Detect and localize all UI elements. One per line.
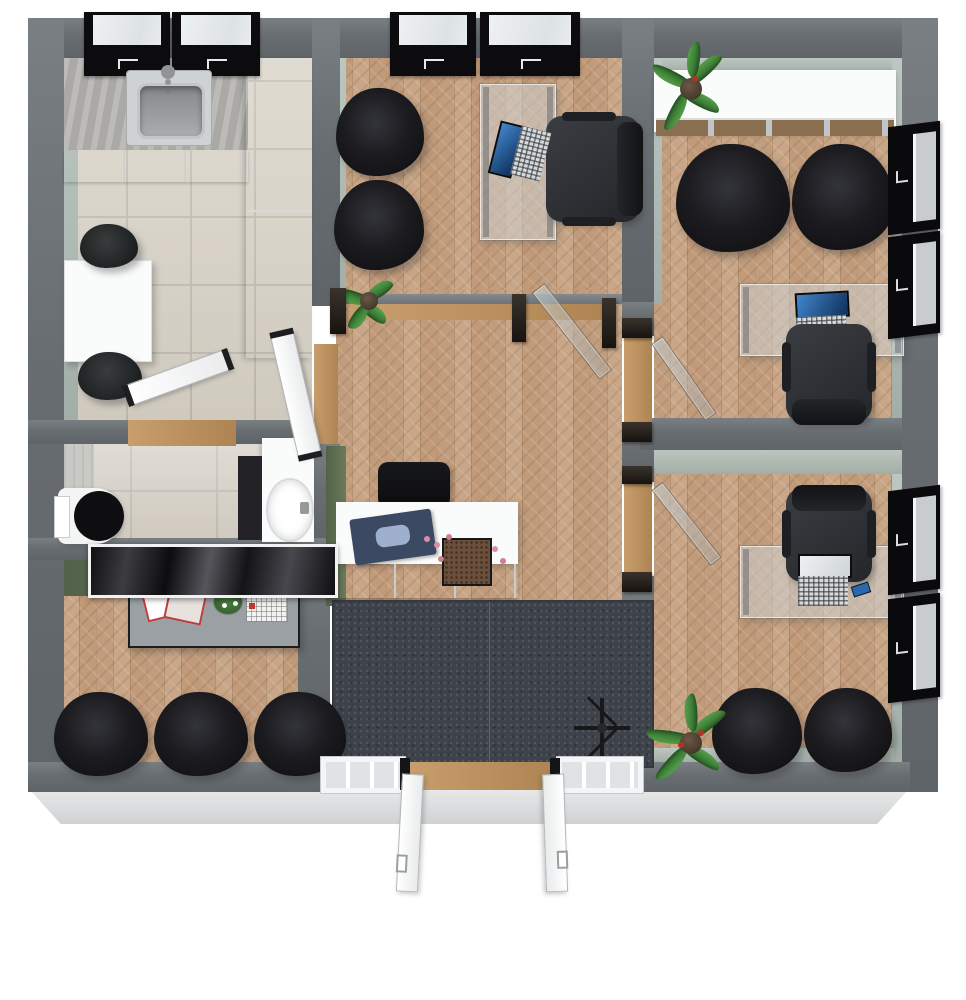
kitchen-door-threshold <box>314 344 338 444</box>
window-handle-icon <box>118 59 138 69</box>
corridor-post-2 <box>622 422 652 442</box>
office-mid-guest-chair-1 <box>336 88 424 176</box>
window-glass <box>913 241 936 326</box>
flower-petals <box>424 536 430 542</box>
wall-art <box>88 544 338 598</box>
window-glass <box>913 603 936 690</box>
bathroom-door-threshold <box>128 420 236 446</box>
office-bottomright-lounge-chair-2 <box>804 688 892 772</box>
sink-basin <box>137 83 205 139</box>
office-bottomright-plant <box>642 694 742 778</box>
entry-threshold <box>408 762 552 790</box>
window-handle-icon <box>896 640 908 653</box>
kitchen-chair-1 <box>80 224 138 268</box>
toilet-seat <box>74 491 124 541</box>
kitchen-tall-cabinet <box>246 58 312 358</box>
office-mid-plant <box>338 278 402 328</box>
chair-arm <box>562 217 616 226</box>
office-topright-task-chair <box>786 324 872 422</box>
chair-arm <box>782 510 791 558</box>
right-offices-divider-wall <box>640 418 902 450</box>
kitchen-dining-table <box>64 260 152 362</box>
chair-arm <box>867 342 876 392</box>
waiting-chair-2 <box>154 692 248 776</box>
entry-door-left <box>396 773 424 892</box>
laptop-keyboard <box>798 576 848 606</box>
kitchen-sink <box>126 70 212 146</box>
credenza-plant <box>648 38 738 134</box>
sink-faucet-icon <box>161 65 175 79</box>
office-mid-task-chair <box>546 116 640 222</box>
partition-post-3 <box>602 298 616 348</box>
waiting-chair-1 <box>54 692 148 776</box>
office-topright-window-2 <box>888 231 940 339</box>
kitchen-window-2 <box>172 12 260 76</box>
window-glass <box>913 495 936 582</box>
window-handle-icon <box>896 532 908 545</box>
exterior-wall-left <box>28 18 64 792</box>
laptop-screen <box>798 554 852 578</box>
office-bottomright-laptop <box>798 554 848 608</box>
window-glass <box>489 15 571 45</box>
basin-faucet-icon <box>300 502 309 514</box>
office-mid-guest-chair-2 <box>334 180 424 270</box>
partition-post-2 <box>512 294 526 342</box>
entry-sidelight-right <box>556 756 644 794</box>
office-mid-window-1 <box>390 12 476 76</box>
kitchen-hall-wall-upper <box>312 18 340 306</box>
corridor-post-4 <box>622 572 652 592</box>
entry-sidelight-left <box>320 756 406 794</box>
corridor-lower-threshold <box>624 482 652 576</box>
rug-seam <box>489 602 490 762</box>
vanity-counter-dark <box>238 456 264 540</box>
window-handle-icon <box>896 278 908 291</box>
chair-arm <box>782 342 791 392</box>
corridor-post-1 <box>622 318 652 338</box>
chair-arm <box>562 112 616 121</box>
window-handle-icon <box>521 59 541 69</box>
window-handle-icon <box>424 59 444 69</box>
office-bottomright-top-wall-face <box>654 448 902 474</box>
toilet-tank <box>54 496 70 538</box>
office-topright-lounge-chair-2 <box>792 144 894 250</box>
corridor-post-3 <box>622 466 652 484</box>
window-glass <box>399 15 467 45</box>
reception-flower-box <box>442 538 492 586</box>
chair-arm <box>867 510 876 558</box>
window-glass <box>913 131 936 222</box>
floor-plan <box>0 0 966 1000</box>
kitchen-cabinet-fronts <box>64 150 248 182</box>
kitchen-window-1 <box>84 12 170 76</box>
office-bottomright-window-2 <box>888 593 940 703</box>
office-topright-window-1 <box>888 121 940 235</box>
entry-door-right <box>542 774 568 893</box>
window-handle-icon <box>207 59 227 69</box>
exterior-base <box>30 790 908 824</box>
corridor-upper-threshold <box>624 336 652 426</box>
window-glass <box>93 15 161 45</box>
window-handle-icon <box>896 170 908 183</box>
partition-post-1 <box>330 288 346 334</box>
window-glass <box>181 15 251 45</box>
office-mid-window-2 <box>480 12 580 76</box>
office-bottomright-window-1 <box>888 485 940 595</box>
